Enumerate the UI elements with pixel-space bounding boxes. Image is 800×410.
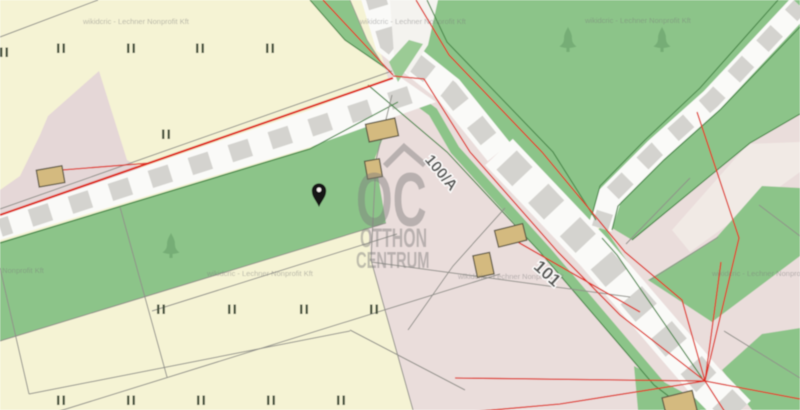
svg-text:wikidcric - Lechner Nonprofit: wikidcric - Lechner Nonprofit Kft	[584, 16, 692, 25]
svg-text:wikidcric - Lechner Nonprofit: wikidcric - Lechner Nonprofit Kft	[0, 266, 45, 275]
svg-text:wikidcric - Lechner Nonprofit: wikidcric - Lechner Nonprofit Kft	[359, 17, 467, 26]
svg-text:wikidcric - Lechner Nonprofit: wikidcric - Lechner Nonprofit Kft	[82, 17, 190, 26]
svg-text:wikidcric - Lechner Nonprofit: wikidcric - Lechner Nonprofit Kft	[711, 269, 800, 278]
svg-text:CENTRUM: CENTRUM	[356, 249, 430, 274]
svg-text:wikidcric - Lechner Nonprofit: wikidcric - Lechner Nonprofit Kft	[206, 269, 314, 278]
